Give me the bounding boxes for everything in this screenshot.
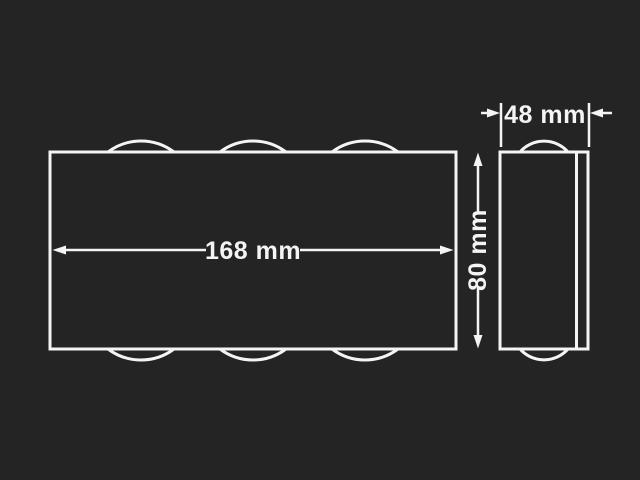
background bbox=[0, 0, 640, 480]
side-depth-label: 48 mm bbox=[504, 101, 586, 129]
side-height-label: 80 mm bbox=[464, 209, 492, 291]
dimension-drawing: 168 mm 80 mm 48 mm bbox=[0, 0, 640, 480]
front-width-label: 168 mm bbox=[205, 237, 301, 265]
